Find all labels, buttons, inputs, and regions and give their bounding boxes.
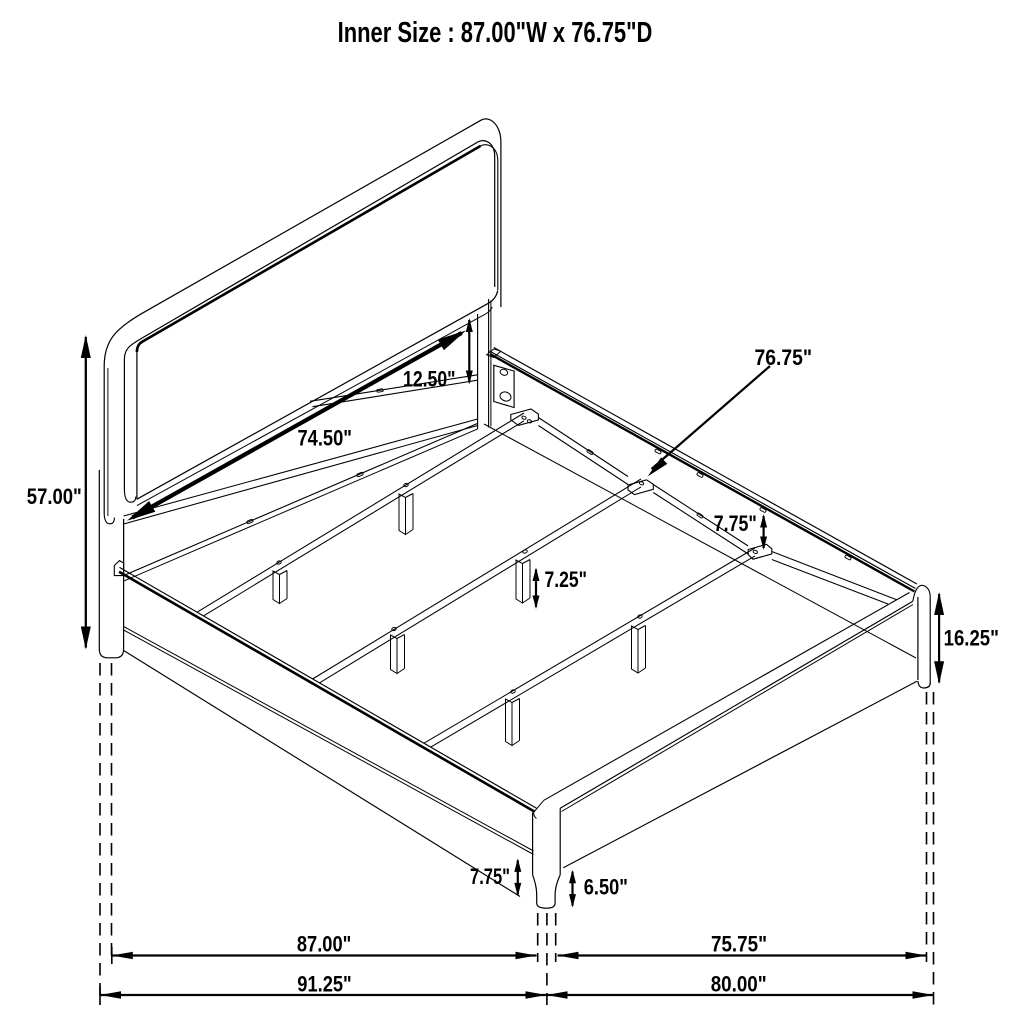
svg-text:74.50": 74.50" [298,426,352,451]
svg-text:16.25": 16.25" [944,625,999,650]
svg-text:80.00": 80.00" [711,971,767,996]
svg-text:91.25": 91.25" [297,971,351,996]
svg-text:7.75": 7.75" [470,864,510,889]
svg-text:12.50": 12.50" [403,366,456,391]
svg-text:87.00": 87.00" [297,931,351,956]
svg-text:6.50": 6.50" [584,874,628,899]
svg-text:57.00": 57.00" [27,484,82,509]
svg-text:76.75": 76.75" [755,345,813,370]
svg-text:75.75": 75.75" [711,931,767,956]
svg-text:7.75": 7.75" [714,511,757,536]
svg-text:7.25": 7.25" [545,567,588,592]
svg-text:Inner Size : 87.00"W x 76.75"D: Inner Size : 87.00"W x 76.75"D [338,17,653,49]
